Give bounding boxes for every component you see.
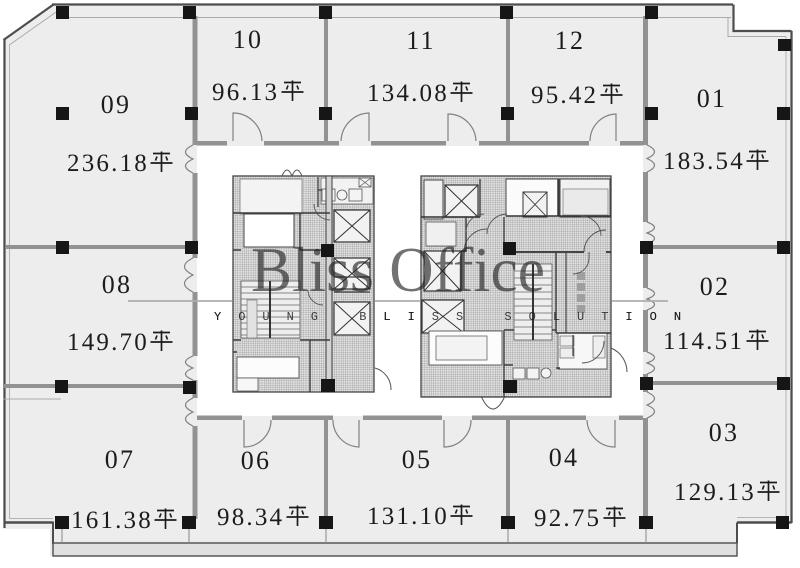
svg-text:12: 12 [555,26,585,55]
svg-text:04: 04 [549,443,579,472]
svg-text:06: 06 [241,446,271,475]
svg-text:149.70: 149.70 [67,329,149,356]
svg-text:92.75: 92.75 [534,505,601,532]
svg-text:95.42: 95.42 [531,82,598,109]
svg-text:09: 09 [101,90,131,119]
svg-text:114.51: 114.51 [663,328,744,355]
svg-text:05: 05 [402,445,432,474]
svg-text:YOUNG BLISS SOLUTION: YOUNG BLISS SOLUTION [214,310,698,324]
svg-text:236.18: 236.18 [67,150,149,177]
svg-text:11: 11 [406,26,435,55]
svg-text:98.34: 98.34 [217,504,284,531]
svg-text:96.13: 96.13 [212,79,279,106]
svg-text:Bliss Office: Bliss Office [251,234,545,305]
svg-text:03: 03 [709,418,739,447]
svg-text:131.10: 131.10 [367,503,449,530]
svg-text:07: 07 [105,445,135,474]
svg-text:01: 01 [697,84,727,113]
svg-text:134.08: 134.08 [367,80,449,107]
svg-text:129.13: 129.13 [674,479,756,506]
svg-text:183.54: 183.54 [663,148,745,175]
svg-text:02: 02 [700,272,730,301]
svg-text:10: 10 [233,25,263,54]
svg-text:08: 08 [102,270,132,299]
svg-text:161.38: 161.38 [71,507,153,534]
